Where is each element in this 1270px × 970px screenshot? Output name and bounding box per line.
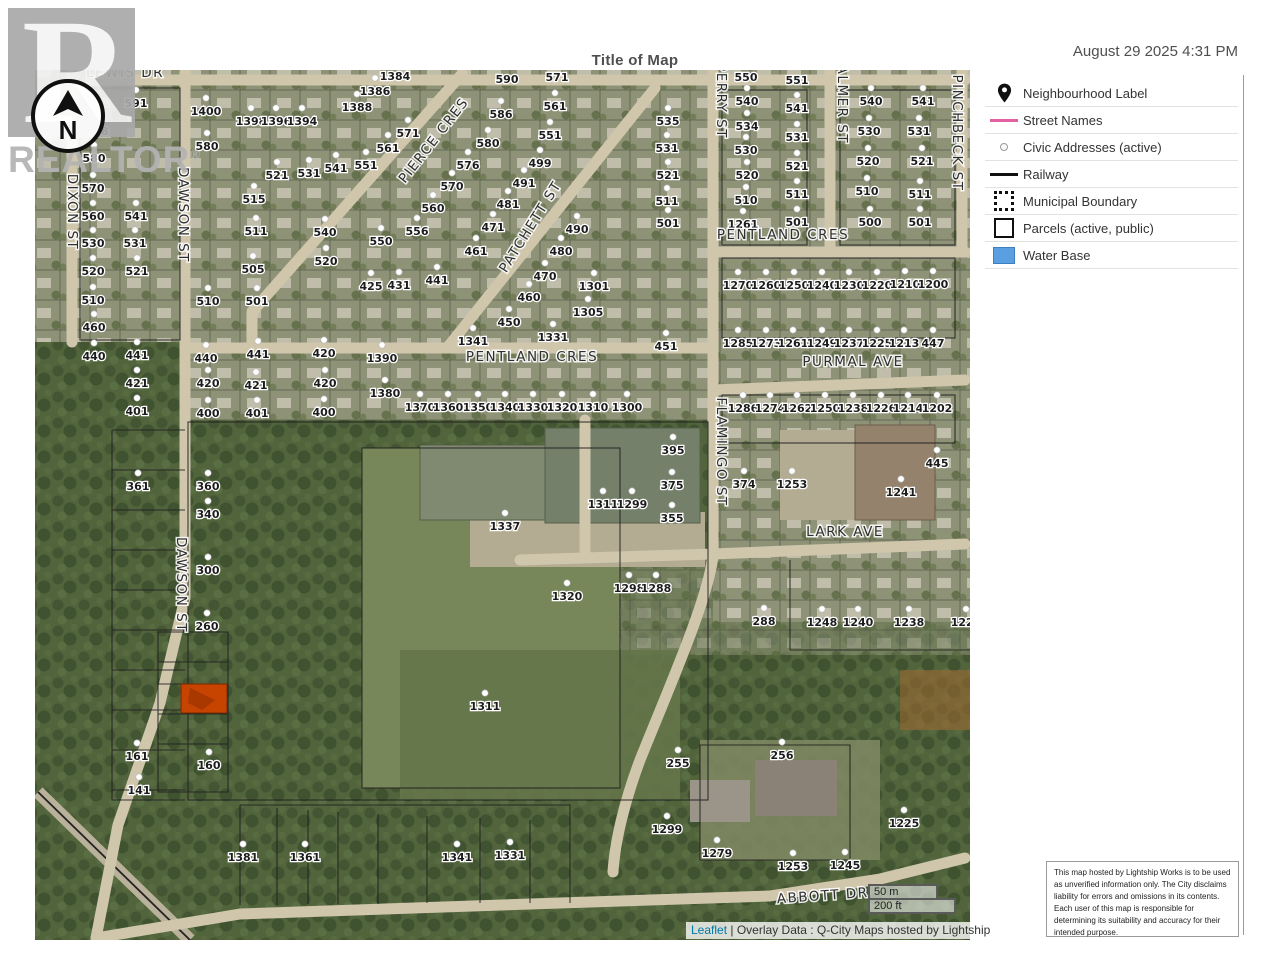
civic-address-marker — [547, 119, 553, 125]
civic-address-marker — [454, 841, 460, 847]
address-label: 561 — [377, 142, 400, 155]
address-label: 1262 — [782, 402, 813, 415]
civic-address-marker — [133, 200, 139, 206]
civic-address-marker — [866, 115, 872, 121]
address-label: 515 — [243, 193, 266, 206]
address-label: 461 — [465, 245, 488, 258]
civic-address-marker — [574, 213, 580, 219]
legend-row-parcels: Parcels (active, public) — [985, 215, 1238, 242]
address-label: 441 — [126, 349, 149, 362]
address-label: 1381 — [228, 851, 259, 864]
civic-address-marker — [414, 215, 420, 221]
address-label: 440 — [83, 350, 106, 363]
address-label: 1250 — [810, 402, 841, 415]
civic-address-marker — [526, 281, 532, 287]
address-label: 374 — [733, 478, 756, 491]
street-name-label: PINCHBECK ST — [949, 75, 965, 192]
address-label: 570 — [441, 180, 464, 193]
civic-address-marker — [205, 554, 211, 560]
address-label: 511 — [786, 188, 809, 201]
address-label: 501 — [909, 216, 932, 229]
legend-label: Neighbourhood Label — [1023, 86, 1147, 101]
civic-address-marker — [507, 839, 513, 845]
civic-address-marker — [91, 311, 97, 317]
civic-address-marker — [663, 330, 669, 336]
civic-address-marker — [405, 117, 411, 123]
civic-address-marker — [552, 90, 558, 96]
civic-address-marker — [333, 152, 339, 158]
civic-address-marker — [855, 606, 861, 612]
address-label: 260 — [196, 620, 219, 633]
address-label: 160 — [198, 759, 221, 772]
civic-address-marker — [916, 115, 922, 121]
civic-address-marker — [470, 325, 476, 331]
address-label: 355 — [661, 512, 684, 525]
civic-address-marker — [744, 85, 750, 91]
address-label: 521 — [786, 160, 809, 173]
address-label: 551 — [355, 159, 378, 172]
civic-address-marker — [794, 92, 800, 98]
map-print-page: Title of Map August 29 2025 4:31 PM — [0, 0, 1270, 970]
civic-address-marker — [136, 774, 142, 780]
address-label: 141 — [128, 784, 151, 797]
address-label: 520 — [82, 265, 105, 278]
civic-address-marker — [874, 269, 880, 275]
address-label: 450 — [498, 316, 521, 329]
civic-address-marker — [550, 321, 556, 327]
civic-address-marker — [368, 270, 374, 276]
civic-address-marker — [363, 149, 369, 155]
address-label: 1386 — [360, 85, 391, 98]
legend-label: Street Names — [1023, 113, 1102, 128]
civic-address-marker — [665, 105, 671, 111]
parcel-swatch — [994, 218, 1014, 238]
attribution-separator: | — [730, 923, 733, 937]
civic-address-marker — [354, 91, 360, 97]
civic-address-marker — [675, 747, 681, 753]
civic-address-marker — [90, 255, 96, 261]
civic-address-marker — [430, 192, 436, 198]
address-label: 255 — [667, 757, 690, 770]
civic-address-marker — [819, 269, 825, 275]
civic-address-marker — [90, 200, 96, 206]
address-label: 520 — [857, 155, 880, 168]
civic-address-marker — [203, 342, 209, 348]
address-label: 580 — [477, 137, 500, 150]
civic-address-marker — [372, 75, 378, 81]
address-label: 1320 — [547, 401, 578, 414]
address-label: 541 — [786, 102, 809, 115]
street-name-label: PENTLAND CRES — [466, 349, 598, 365]
civic-address-marker — [790, 327, 796, 333]
street-name-label: PERRY ST — [713, 70, 729, 139]
address-label: 531 — [124, 237, 147, 250]
street-name-label: DIXON ST — [64, 174, 80, 251]
address-label: 1237 — [834, 337, 865, 350]
address-label: 420 — [313, 347, 336, 360]
address-label: 431 — [388, 279, 411, 292]
civic-address-marker — [664, 132, 670, 138]
civic-address-marker — [378, 225, 384, 231]
address-label: 1230 — [834, 279, 865, 292]
address-label: 1384 — [380, 70, 411, 83]
civic-address-marker — [919, 145, 925, 151]
address-label: 1270 — [723, 279, 754, 292]
civic-address-marker — [299, 105, 305, 111]
legend-label: Parcels (active, public) — [1023, 221, 1154, 236]
civic-address-marker — [465, 149, 471, 155]
civic-address-marker — [134, 740, 140, 746]
civic-address-marker — [322, 367, 328, 373]
civic-address-marker — [626, 572, 632, 578]
civic-address-marker — [485, 127, 491, 133]
civic-address-marker — [740, 392, 746, 398]
civic-address-marker — [735, 327, 741, 333]
address-label: 161 — [126, 750, 149, 763]
civic-address-marker — [134, 255, 140, 261]
address-label: 1228 — [951, 616, 970, 629]
address-label: 531 — [298, 167, 321, 180]
civic-address-marker — [934, 447, 940, 453]
address-label: 1279 — [702, 847, 733, 860]
page-divider-line — [1243, 75, 1244, 935]
address-label: 1300 — [612, 401, 643, 414]
civic-address-marker — [90, 227, 96, 233]
address-label: 480 — [550, 245, 573, 258]
address-label: 531 — [908, 125, 931, 138]
civic-address-marker — [205, 397, 211, 403]
address-label: 530 — [735, 144, 758, 157]
address-label: 1331 — [538, 331, 569, 344]
street-name-label: PENTLAND CRES — [717, 227, 849, 243]
address-label: 510 — [82, 294, 105, 307]
civic-address-marker — [600, 488, 606, 494]
water-swatch — [993, 247, 1015, 264]
civic-address-marker — [542, 260, 548, 266]
civic-address-marker — [254, 285, 260, 291]
civic-address-marker — [920, 85, 926, 91]
print-datetime: August 29 2025 4:31 PM — [1073, 43, 1238, 60]
civic-address-marker — [917, 178, 923, 184]
civic-address-marker — [846, 269, 852, 275]
map-legend: Neighbourhood Label Street Names Civic A… — [985, 80, 1238, 269]
north-arrow-icon: N — [53, 90, 83, 145]
address-label: 571 — [546, 71, 569, 84]
address-label: 541 — [325, 162, 348, 175]
disclaimer-text: This map hosted by Lightship Works is to… — [1054, 868, 1230, 937]
civic-address-marker — [864, 175, 870, 181]
civic-address-marker — [761, 605, 767, 611]
address-label: 534 — [736, 120, 759, 133]
civic-address-marker — [521, 167, 527, 173]
civic-address-marker — [134, 395, 140, 401]
civic-address-marker — [867, 206, 873, 212]
address-label: 1220 — [862, 279, 893, 292]
address-label: 1331 — [495, 849, 526, 862]
civic-address-marker — [475, 391, 481, 397]
address-label: 541 — [125, 210, 148, 223]
address-label: 1360 — [433, 401, 464, 414]
address-label: 400 — [197, 407, 220, 420]
civic-address-marker — [449, 170, 455, 176]
address-label: 510 — [197, 295, 220, 308]
address-label: 1390 — [367, 352, 398, 365]
civic-address-marker — [664, 813, 670, 819]
civic-address-marker — [794, 392, 800, 398]
map-pin-icon — [997, 83, 1012, 103]
civic-address-marker — [385, 132, 391, 138]
address-label: 288 — [753, 615, 776, 628]
address-label: 360 — [197, 480, 220, 493]
address-label: 551 — [539, 129, 562, 142]
address-label: 1340 — [490, 401, 521, 414]
address-label: 1320 — [552, 590, 583, 603]
civic-address-marker — [506, 306, 512, 312]
civic-address-marker — [255, 338, 261, 344]
civic-address-marker — [906, 606, 912, 612]
address-label: 1310 — [578, 401, 609, 414]
address-label: 541 — [912, 95, 935, 108]
civic-address-marker — [396, 269, 402, 275]
address-label: 481 — [497, 198, 520, 211]
civic-address-marker — [791, 269, 797, 275]
civic-address-marker — [482, 690, 488, 696]
civic-address-marker — [901, 807, 907, 813]
address-label: 540 — [860, 95, 883, 108]
leaflet-link[interactable]: Leaflet — [691, 923, 727, 937]
address-label: 1361 — [290, 851, 321, 864]
civic-address-marker — [321, 396, 327, 402]
map-canvas[interactable]: 5915885805705605415305315205215104604404… — [35, 70, 970, 940]
civic-address-marker — [585, 296, 591, 302]
civic-address-marker — [91, 340, 97, 346]
civic-address-marker — [323, 245, 329, 251]
civic-address-marker — [434, 264, 440, 270]
civic-address-marker — [669, 469, 675, 475]
address-label: 1288 — [641, 582, 672, 595]
civic-address-marker — [902, 268, 908, 274]
civic-address-marker — [741, 468, 747, 474]
legend-label: Water Base — [1023, 248, 1090, 263]
legend-label: Municipal Boundary — [1023, 194, 1137, 209]
address-label: 511 — [909, 188, 932, 201]
civic-address-marker — [664, 185, 670, 191]
legend-row-railway: Railway — [985, 161, 1238, 188]
civic-address-marker — [273, 105, 279, 111]
address-label: 420 — [314, 377, 337, 390]
address-label: 1240 — [843, 616, 874, 629]
address-label: 1200 — [918, 278, 949, 291]
civic-address-marker — [559, 391, 565, 397]
civic-address-marker — [564, 580, 570, 586]
civic-address-marker — [794, 121, 800, 127]
address-label: 521 — [657, 169, 680, 182]
address-label: 1253 — [777, 478, 808, 491]
civic-address-marker — [379, 342, 385, 348]
civic-address-marker — [735, 269, 741, 275]
civic-address-marker — [790, 850, 796, 856]
civic-address-marker — [901, 327, 907, 333]
civic-address-marker — [302, 841, 308, 847]
civic-address-marker — [204, 610, 210, 616]
address-label: 1388 — [342, 101, 373, 114]
scale-control: 50 m 200 ft — [868, 884, 956, 914]
address-label: 400 — [313, 406, 336, 419]
address-label: 256 — [771, 749, 794, 762]
address-label: 500 — [859, 216, 882, 229]
address-label: 520 — [315, 255, 338, 268]
civic-address-marker — [819, 606, 825, 612]
address-label: 561 — [544, 100, 567, 113]
address-label: 560 — [422, 202, 445, 215]
address-label: 1305 — [573, 306, 604, 319]
street-name-label: DAWSON ST — [173, 537, 189, 633]
civic-address-marker — [794, 178, 800, 184]
address-label: 451 — [655, 340, 678, 353]
civic-address-marker — [205, 470, 211, 476]
legend-row-municipal-boundary: Municipal Boundary — [985, 188, 1238, 215]
address-label: 491 — [513, 177, 536, 190]
civic-address-marker — [204, 130, 210, 136]
address-label: 511 — [245, 225, 268, 238]
address-label: 1299 — [617, 498, 648, 511]
address-label: 1299 — [652, 823, 683, 836]
railway-line-swatch — [990, 173, 1018, 176]
civic-address-marker — [743, 134, 749, 140]
civic-address-marker — [934, 392, 940, 398]
civic-address-marker — [878, 392, 884, 398]
address-label: 1311 — [588, 498, 619, 511]
civic-address-marker — [898, 476, 904, 482]
civic-address-marker — [794, 150, 800, 156]
address-label: 1202 — [922, 402, 953, 415]
civic-address-marker — [842, 849, 848, 855]
civic-address-marker — [206, 749, 212, 755]
civic-address-marker — [498, 98, 504, 104]
address-label: 501 — [246, 295, 269, 308]
civic-address-marker — [205, 367, 211, 373]
address-label: 556 — [406, 225, 429, 238]
address-label: 1241 — [886, 486, 917, 499]
address-label: 1210 — [890, 278, 921, 291]
address-label: 550 — [735, 71, 758, 84]
address-label: 1380 — [370, 387, 401, 400]
street-name-label: FLAMINGO ST — [713, 397, 729, 506]
civic-address-marker — [382, 377, 388, 383]
map-attribution: Leaflet | Overlay Data : Q-City Maps hos… — [686, 922, 995, 939]
civic-address-marker — [253, 369, 259, 375]
address-label: 540 — [314, 226, 337, 239]
civic-address-marker — [473, 235, 479, 241]
civic-address-marker — [744, 159, 750, 165]
address-label: 520 — [736, 169, 759, 182]
civic-address-marker — [90, 284, 96, 290]
street-line-swatch — [990, 119, 1018, 122]
address-label: 501 — [657, 217, 680, 230]
address-label: 471 — [482, 221, 505, 234]
address-label: 521 — [911, 155, 934, 168]
address-label: 505 — [242, 263, 265, 276]
civic-address-marker — [714, 837, 720, 843]
civic-address-marker — [917, 206, 923, 212]
address-label: 420 — [197, 377, 220, 390]
address-label: 1238 — [838, 402, 869, 415]
legend-row-civic-addresses: Civic Addresses (active) — [985, 134, 1238, 161]
civic-address-marker — [251, 183, 257, 189]
civic-address-marker — [558, 235, 564, 241]
address-label: 340 — [197, 508, 220, 521]
address-label: 1253 — [778, 860, 809, 873]
address-label: 1238 — [894, 616, 925, 629]
municipal-boundary-swatch — [994, 191, 1014, 211]
disclaimer-box: This map hosted by Lightship Works is to… — [1046, 861, 1239, 937]
address-label: 1341 — [442, 851, 473, 864]
address-label: 551 — [786, 74, 809, 87]
address-label: 421 — [245, 379, 268, 392]
civic-address-marker — [417, 391, 423, 397]
address-label: 375 — [661, 479, 684, 492]
civic-address-marker — [905, 392, 911, 398]
address-label: 521 — [126, 265, 149, 278]
address-label: 560 — [82, 210, 105, 223]
address-label: 571 — [397, 127, 420, 140]
address-label: 531 — [656, 142, 679, 155]
address-label: 1394 — [287, 115, 318, 128]
civic-address-marker — [763, 327, 769, 333]
address-label: 576 — [457, 159, 480, 172]
civic-address-marker — [629, 488, 635, 494]
address-label: 447 — [922, 337, 945, 350]
address-label: 401 — [246, 407, 269, 420]
civic-address-marker — [203, 95, 209, 101]
civic-address-marker — [248, 105, 254, 111]
scale-imperial: 200 ft — [868, 898, 956, 914]
civic-address-marker — [134, 339, 140, 345]
address-label: 535 — [657, 115, 680, 128]
civic-address-marker — [250, 253, 256, 259]
address-label: 521 — [266, 169, 289, 182]
civic-address-marker — [132, 227, 138, 233]
address-label: 1225 — [889, 817, 920, 830]
civic-address-marker — [445, 391, 451, 397]
legend-label: Railway — [1023, 167, 1069, 182]
legend-label: Civic Addresses (active) — [1023, 140, 1162, 155]
address-label: 1213 — [889, 337, 920, 350]
street-name-label: PURMAL AVE — [802, 354, 903, 370]
civic-address-marker — [591, 270, 597, 276]
address-label: 510 — [856, 185, 879, 198]
civic-address-marker — [874, 327, 880, 333]
address-label: 401 — [126, 405, 149, 418]
civic-address-marker — [530, 391, 536, 397]
civic-address-marker — [740, 208, 746, 214]
civic-address-marker — [794, 206, 800, 212]
address-label: 460 — [83, 321, 106, 334]
civic-address-marker — [306, 157, 312, 163]
civic-address-marker — [505, 188, 511, 194]
civic-address-marker — [205, 498, 211, 504]
civic-address-dot-swatch — [1000, 143, 1008, 151]
civic-address-marker — [868, 85, 874, 91]
address-label: 530 — [858, 125, 881, 138]
compass-n-label: N — [59, 115, 78, 145]
address-label: 510 — [735, 194, 758, 207]
civic-address-marker — [135, 470, 141, 476]
street-name-label: LARK AVE — [806, 524, 884, 540]
address-label: 540 — [736, 95, 759, 108]
address-label: 550 — [370, 235, 393, 248]
civic-address-marker — [653, 572, 659, 578]
